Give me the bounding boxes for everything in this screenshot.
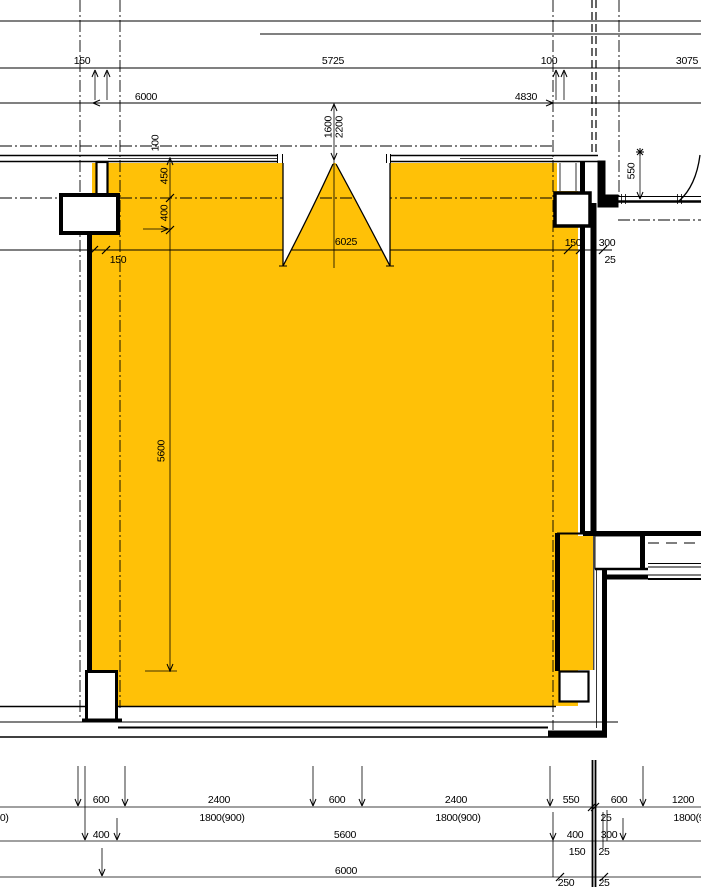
dim-label: 400 bbox=[93, 829, 110, 841]
dim-label: 1200 bbox=[672, 794, 695, 806]
dim-label: 150 bbox=[74, 55, 91, 67]
dim-label: 25 bbox=[598, 877, 610, 887]
column-top-right bbox=[555, 193, 590, 226]
column-bottom-left bbox=[87, 672, 117, 721]
dim-label: 2200 bbox=[334, 115, 346, 138]
dim-label: 5725 bbox=[322, 55, 345, 67]
dim-label: 6000 bbox=[135, 91, 158, 103]
dim-label: 450 bbox=[159, 167, 171, 184]
dim-label: 250 bbox=[558, 877, 575, 887]
right-strip-fill bbox=[578, 536, 593, 670]
dim-label: 2400 bbox=[208, 794, 231, 806]
column-top-left bbox=[61, 195, 118, 233]
floor-plan-svg: 150 5725 100 3075 6000 4830 1600 2200 10… bbox=[0, 0, 701, 887]
dim-label: 25 bbox=[598, 846, 610, 858]
dim-label: 2400 bbox=[445, 794, 468, 806]
dim-label: 150 bbox=[110, 254, 127, 266]
dim-label: 1800(900) bbox=[435, 812, 480, 824]
dim-label: 6000 bbox=[335, 865, 358, 877]
dim-label: 600 bbox=[611, 794, 628, 806]
dim-label: 1800(900) bbox=[673, 812, 701, 824]
dim-label: 25 bbox=[600, 812, 612, 824]
dim-label: 550 bbox=[563, 794, 580, 806]
dim-label: 600 bbox=[93, 794, 110, 806]
wall-stub-top-left bbox=[97, 162, 108, 195]
dim-label: 1800(900) bbox=[199, 812, 244, 824]
dim-label: 400 bbox=[159, 204, 171, 221]
dim-label: 3075 bbox=[676, 55, 699, 67]
dim-label: 5600 bbox=[156, 439, 168, 462]
dim-label: 400 bbox=[567, 829, 584, 841]
dim-label: 1800(900) bbox=[0, 812, 9, 824]
dim-label: 600 bbox=[329, 794, 346, 806]
dim-label: 5600 bbox=[334, 829, 357, 841]
dim-label: 6025 bbox=[335, 236, 358, 248]
dim-label: 100 bbox=[541, 55, 558, 67]
floor-plan-canvas: 150 5725 100 3075 6000 4830 1600 2200 10… bbox=[0, 0, 701, 887]
dim-label: 150 bbox=[569, 846, 586, 858]
column-bottom-right bbox=[560, 672, 589, 702]
dim-label: 550 bbox=[626, 162, 638, 179]
dim-label: 300 bbox=[601, 829, 618, 841]
dim-label: 100 bbox=[150, 134, 162, 151]
dim-label: 4830 bbox=[515, 91, 538, 103]
dim-label: 150 bbox=[565, 237, 582, 249]
dim-label: 300 bbox=[599, 237, 616, 249]
dim-label: 25 bbox=[604, 254, 616, 266]
